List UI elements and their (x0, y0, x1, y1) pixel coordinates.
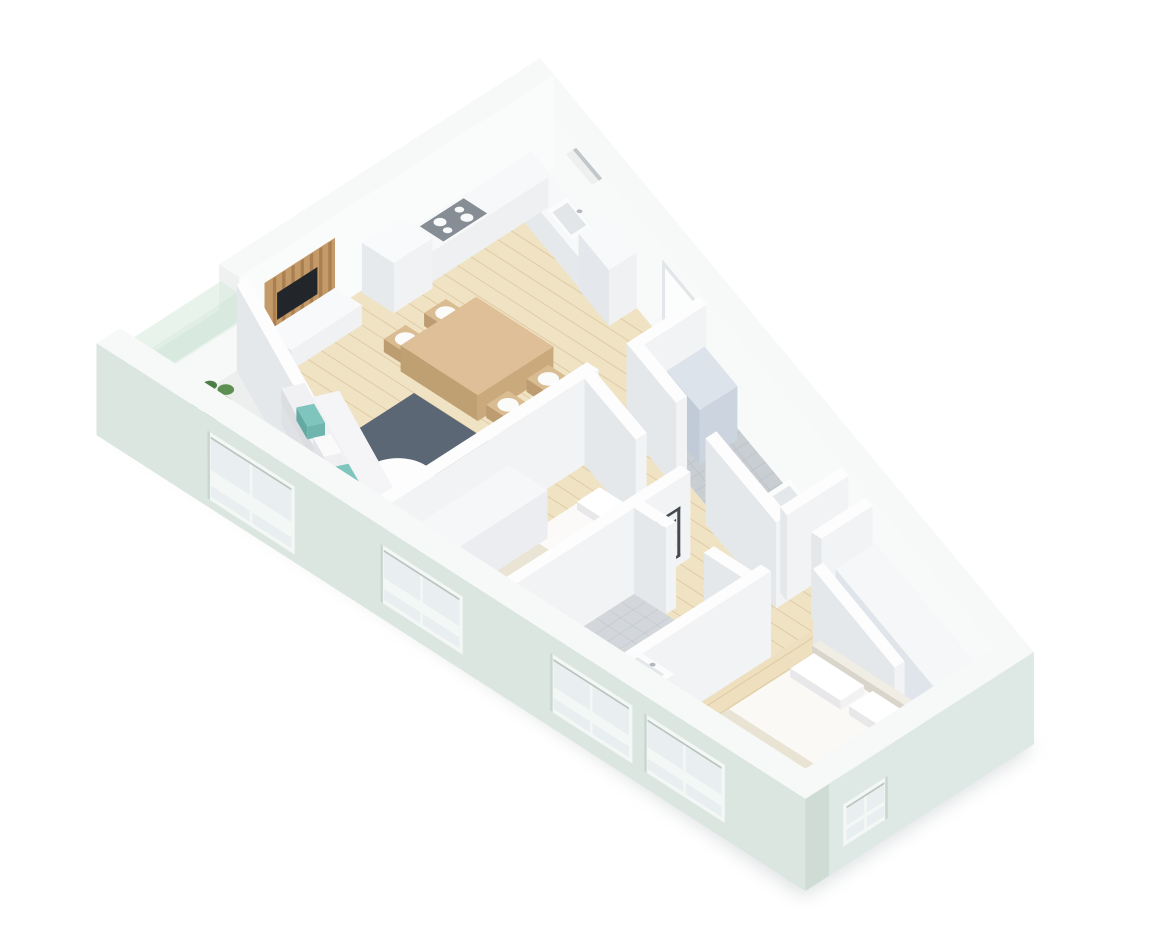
towel-radiator-frame (677, 506, 680, 558)
floor-plan-image (0, 0, 1170, 934)
cooktop-burner (443, 227, 453, 233)
kitchen-faucet (577, 209, 583, 213)
cooktop-burner (434, 218, 447, 226)
floor-plan-canvas (0, 0, 1170, 934)
bathroom2-faucet (650, 663, 656, 667)
cooktop-burner (460, 214, 473, 222)
cooktop-burner (455, 207, 465, 213)
bathroom2-wall-northeast-a (634, 501, 676, 614)
